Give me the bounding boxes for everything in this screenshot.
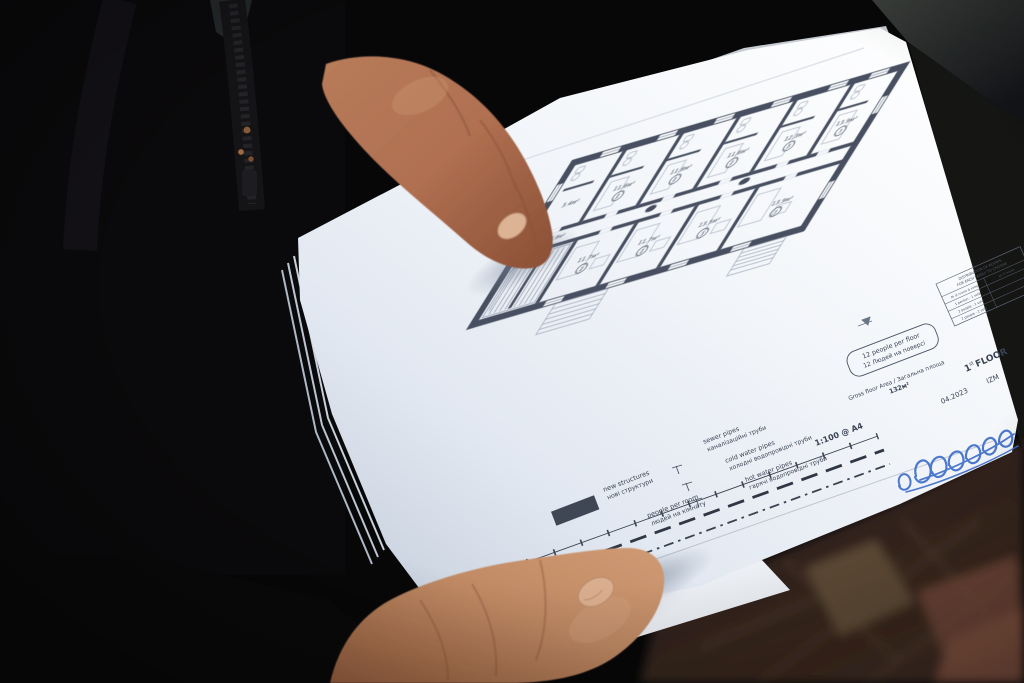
vignette [0, 0, 1024, 683]
photo-canvas: 3.4м² 11.6м² 11.8м² 11.6м² 12.3м² 13.9м²… [0, 0, 1024, 683]
photo-of-floor-plan: 3.4м² 11.6м² 11.8м² 11.6м² 12.3м² 13.9м²… [0, 0, 1024, 683]
